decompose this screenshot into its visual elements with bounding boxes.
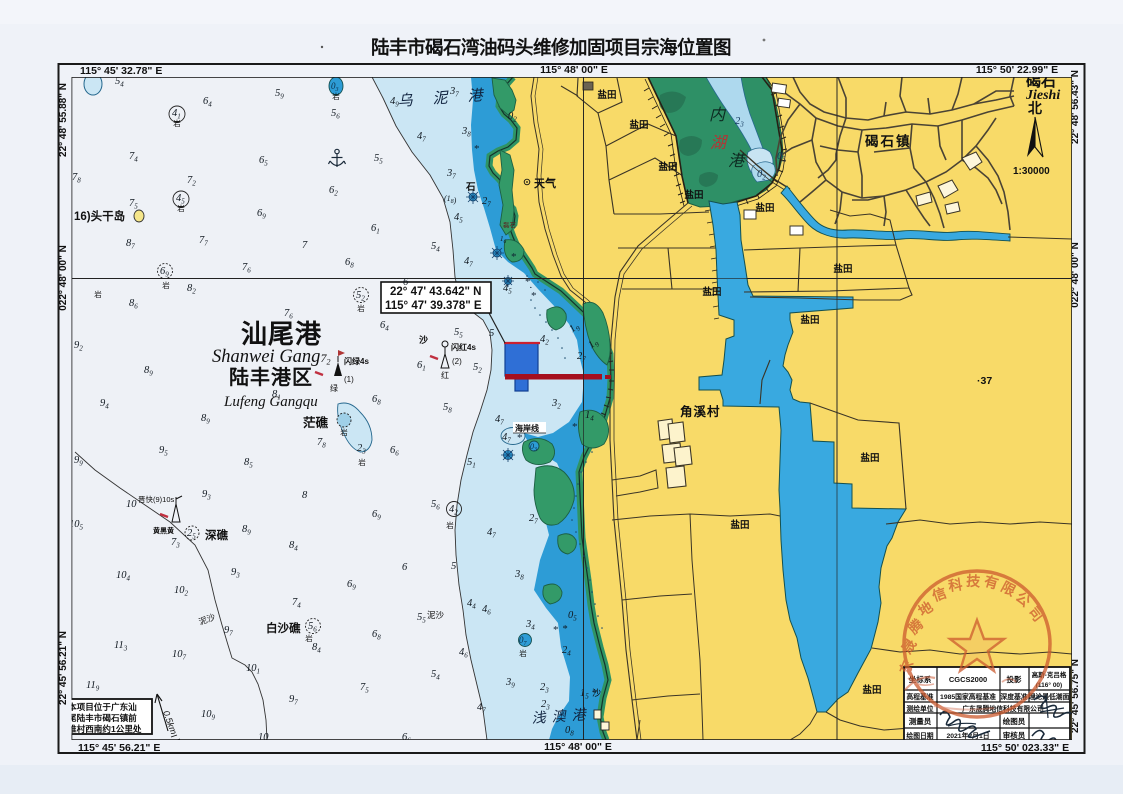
svg-text:岩: 岩: [332, 91, 340, 101]
svg-text:港: 港: [728, 152, 746, 170]
svg-text:技: 技: [966, 573, 982, 590]
svg-text:角溪村: 角溪村: [680, 404, 721, 419]
svg-text:陆丰市碣石湾油码头维修加固项目宗海位置图: 陆丰市碣石湾油码头维修加固项目宗海位置图: [371, 37, 731, 58]
svg-text:盐田: 盐田: [755, 202, 774, 214]
svg-text:沙: 沙: [419, 335, 428, 345]
svg-text:115° 47' 39.378" E: 115° 47' 39.378" E: [385, 300, 482, 312]
svg-text:测量员: 测量员: [909, 716, 932, 726]
svg-text:5: 5: [489, 328, 494, 339]
svg-text:黄黑黄: 黄黑黄: [153, 526, 174, 535]
svg-text:堆村西南约1公里处: 堆村西南约1公里处: [68, 723, 142, 734]
svg-text:22° 45' 56.21" N: 22° 45' 56.21" N: [58, 631, 69, 705]
svg-text:盐田: 盐田: [730, 519, 749, 531]
svg-text:盐田: 盐田: [629, 119, 648, 131]
svg-text:晋快(9)10s: 晋快(9)10s: [138, 494, 175, 504]
svg-text:*: *: [517, 432, 523, 444]
svg-text:115° 48' 00" E: 115° 48' 00" E: [540, 64, 608, 76]
svg-text:1985国家高程基准: 1985国家高程基准: [940, 692, 996, 701]
svg-text:汕尾港: 汕尾港: [241, 320, 322, 349]
svg-text:绿: 绿: [330, 384, 338, 393]
svg-text:岩: 岩: [358, 457, 366, 467]
svg-text:*: *: [553, 624, 559, 636]
svg-text:·37: ·37: [977, 375, 992, 387]
svg-text:7: 7: [302, 240, 308, 251]
svg-text:Shanwei Gang72: Shanwei Gang72: [212, 347, 330, 367]
svg-text:岩: 岩: [305, 633, 313, 643]
svg-text:*: *: [474, 143, 480, 155]
svg-text:岩: 岩: [173, 118, 181, 128]
svg-text:16)头干岛: 16)头干岛: [74, 209, 125, 223]
svg-text:115° 48' 00" E: 115° 48' 00" E: [544, 741, 612, 753]
svg-text:1:30000: 1:30000: [1013, 166, 1050, 177]
svg-text:本项目位于广东汕: 本项目位于广东汕: [68, 701, 137, 712]
svg-text:盐田: 盐田: [684, 189, 703, 201]
svg-text:绘图日期: 绘图日期: [906, 731, 933, 740]
svg-text:盐田: 盐田: [702, 286, 721, 298]
svg-text:红: 红: [441, 370, 449, 380]
svg-text:*: *: [572, 421, 578, 433]
svg-text:测绘单位: 测绘单位: [906, 704, 933, 713]
svg-text:沙: 沙: [592, 688, 601, 698]
svg-text:磊石: 磊石: [503, 221, 517, 229]
svg-text:茫礁: 茫礁: [303, 415, 329, 430]
svg-text:天气: 天气: [534, 176, 556, 190]
svg-text:岩: 岩: [357, 303, 365, 313]
svg-text:白沙礁: 白沙礁: [266, 621, 301, 635]
svg-text:审核员: 审核员: [1003, 730, 1026, 740]
svg-text:盐田: 盐田: [862, 684, 881, 696]
svg-text:115° 45' 56.21" E: 115° 45' 56.21" E: [78, 742, 160, 754]
svg-text:深礁: 深礁: [205, 528, 228, 542]
svg-text:岩: 岩: [177, 203, 185, 213]
svg-text:10: 10: [126, 499, 137, 510]
svg-text:CGCS2000: CGCS2000: [949, 675, 987, 684]
svg-text:盐田: 盐田: [597, 89, 616, 101]
svg-text:115° 45' 32.78" E: 115° 45' 32.78" E: [80, 65, 162, 77]
svg-text:盐田: 盐田: [860, 452, 879, 464]
svg-text:*: *: [562, 624, 568, 635]
svg-text:内: 内: [709, 106, 727, 124]
svg-text:8: 8: [302, 490, 308, 501]
svg-text:碣石镇: 碣石镇: [865, 133, 912, 149]
svg-text:岩: 岩: [519, 648, 527, 658]
svg-text:科: 科: [947, 576, 963, 594]
svg-text:闪红4s: 闪红4s: [451, 342, 476, 352]
svg-text:岩: 岩: [162, 280, 170, 290]
svg-text:绘图员: 绘图员: [1003, 716, 1026, 726]
svg-text:闪绿4s: 闪绿4s: [344, 356, 369, 366]
svg-text:盐田: 盐田: [833, 263, 852, 275]
svg-text:尾陆丰市碣石镇前: 尾陆丰市碣石镇前: [68, 712, 137, 723]
svg-text:115° 50' 22.99" E: 115° 50' 22.99" E: [976, 64, 1058, 76]
svg-text:·: ·: [529, 282, 533, 294]
svg-text:(1): (1): [344, 375, 354, 384]
svg-text:岩: 岩: [340, 427, 348, 437]
svg-text:115° 50' 023.33" E: 115° 50' 023.33" E: [981, 742, 1069, 754]
svg-text:岩: 岩: [446, 520, 454, 530]
svg-text:Lufeng Gangqu: Lufeng Gangqu: [223, 394, 318, 410]
svg-text:海岸线: 海岸线: [515, 423, 539, 433]
svg-text:盐田: 盐田: [800, 314, 819, 326]
svg-text:泥沙: 泥沙: [427, 610, 445, 620]
svg-text:6: 6: [402, 562, 408, 573]
svg-text:北: 北: [1028, 100, 1042, 116]
svg-text:高斯-克吕格: 高斯-克吕格: [1032, 670, 1067, 679]
svg-text:石: 石: [465, 182, 476, 193]
svg-text:*: *: [511, 251, 517, 263]
svg-text:5: 5: [451, 561, 456, 572]
svg-text:22° 48' 55.88" N: 22° 48' 55.88" N: [58, 83, 69, 157]
svg-text:(2): (2): [452, 357, 462, 366]
svg-text:022° 48' 00" N: 022° 48' 00" N: [58, 245, 69, 311]
svg-text:陆丰港区: 陆丰港区: [229, 365, 313, 389]
svg-text:岩: 岩: [94, 289, 102, 299]
svg-text:盐田: 盐田: [658, 161, 677, 173]
